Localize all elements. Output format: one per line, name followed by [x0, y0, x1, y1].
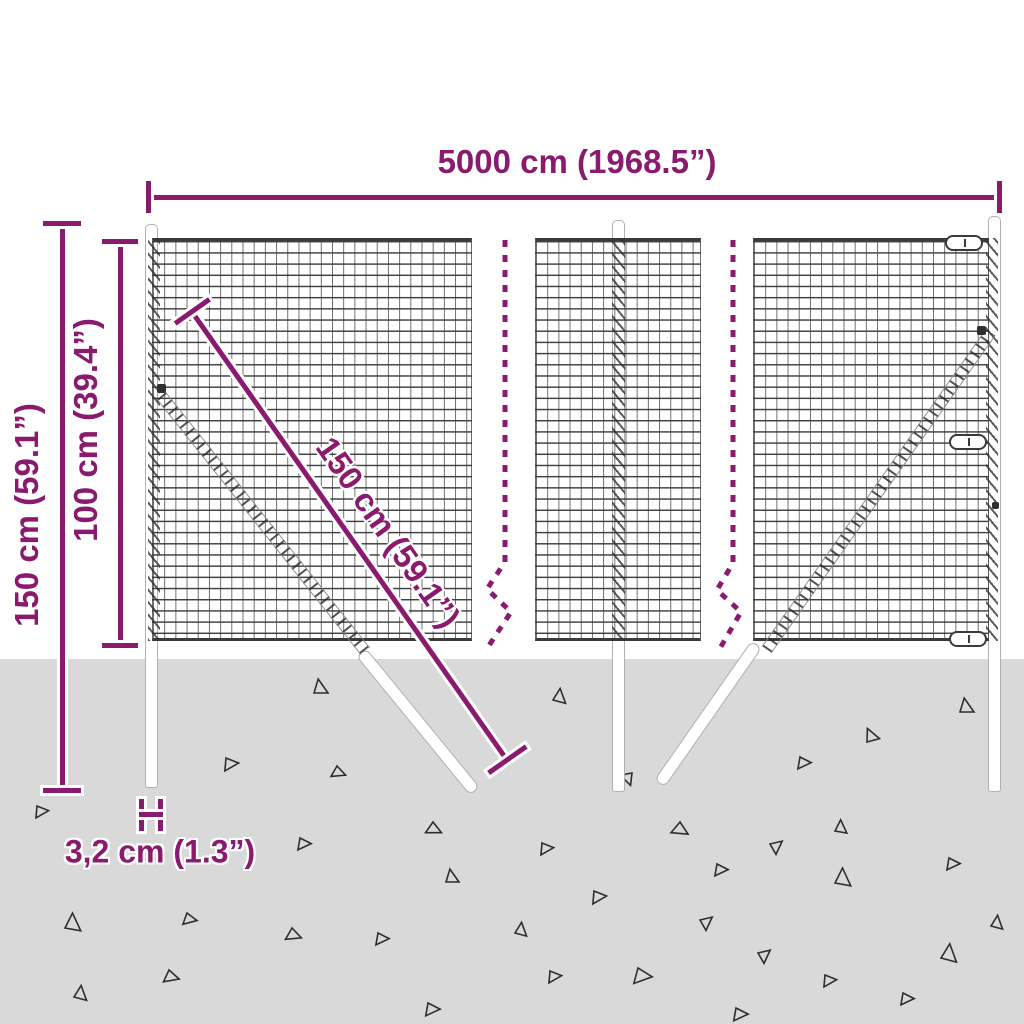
label-total-width: 5000 cm (1968.5”): [438, 143, 717, 181]
fence-dimension-diagram: 5000 cm (1968.5”) 150 cm (59.1”) 100 cm …: [0, 0, 1024, 1024]
wire-coil-middle-post: [612, 238, 625, 641]
post-width-crossbar: [139, 812, 163, 817]
break-line-2: [717, 240, 741, 650]
tension-turnbuckle-bottom: [949, 631, 987, 647]
tension-turnbuckle-top: [945, 235, 983, 251]
dimension-cap-overall-top: [43, 221, 81, 226]
dimension-line-above-ground: [118, 239, 123, 646]
label-post-width: 3,2 cm (1.3”): [65, 834, 255, 871]
label-above-ground-height: 100 cm (39.4”): [67, 318, 105, 542]
dimension-cap-width-right: [997, 181, 1002, 213]
brace-clamp-left: [157, 384, 166, 393]
dimension-cap-above-bottom: [102, 643, 138, 648]
dimension-cap-above-top: [102, 239, 138, 244]
label-overall-height: 150 cm (59.1”): [8, 403, 46, 627]
break-line-1: [486, 240, 511, 650]
wire-coil-right-post: [986, 238, 998, 641]
tension-turnbuckle-middle: [949, 434, 987, 450]
dimension-line-overall-height: [60, 221, 65, 791]
dimension-line-total-width: [148, 195, 1000, 200]
post-clamp-right: [992, 502, 999, 509]
dimension-cap-overall-bottom: [43, 788, 81, 793]
wire-coil-left-post: [148, 238, 160, 641]
dimension-cap-width-left: [146, 181, 151, 213]
brace-clamp-right: [977, 326, 986, 335]
